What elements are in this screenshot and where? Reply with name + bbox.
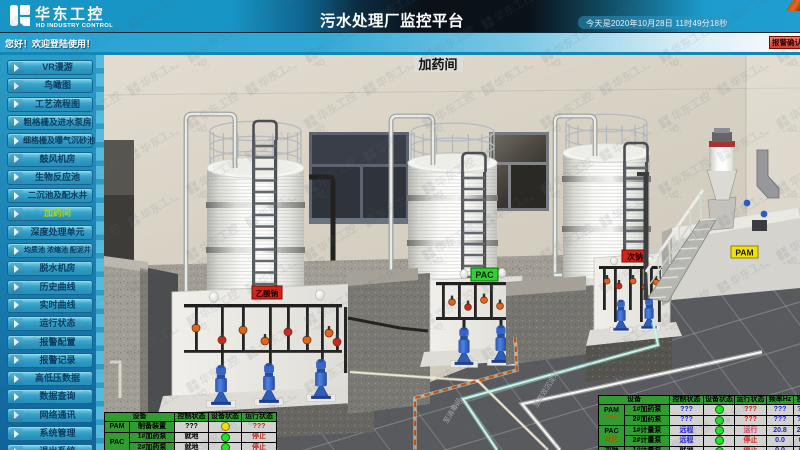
svg-text:加药间: 加药间 (417, 57, 457, 72)
svg-text:PAC: PAC (475, 270, 494, 280)
svg-text:乙酸钠: 乙酸钠 (256, 288, 279, 298)
svg-text:华东工控: 华东工控 (35, 5, 105, 23)
svg-text:次钠: 次钠 (627, 252, 643, 262)
svg-text:HD INDUSTRY CONTROL: HD INDUSTRY CONTROL (36, 23, 113, 29)
svg-text:PAM: PAM (735, 248, 753, 258)
